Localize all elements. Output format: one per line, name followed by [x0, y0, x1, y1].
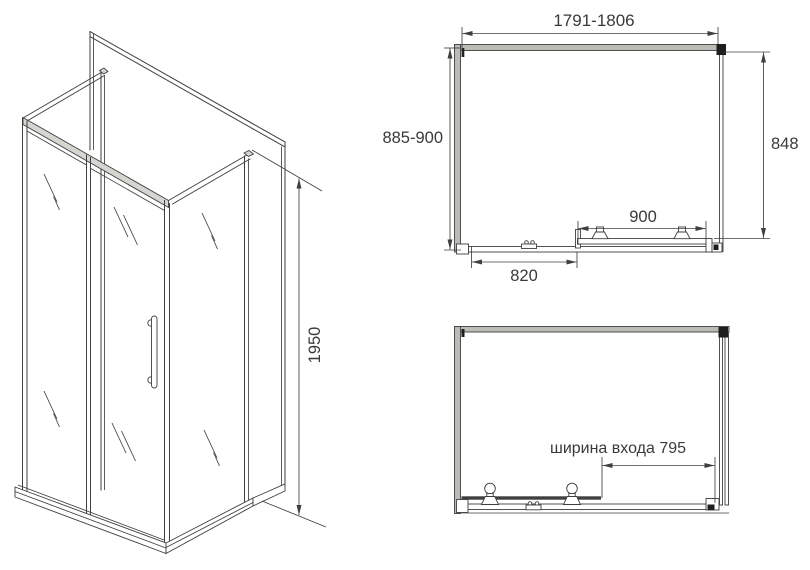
wall-bracket-right-open [719, 327, 729, 338]
plan-walls-open [455, 327, 730, 514]
glass-clamp-open [526, 505, 541, 510]
glass-clamp [522, 244, 537, 249]
sliding-door-open [462, 483, 602, 504]
plan-view-closed: 1791-1806 885-900 848 900 820 [382, 11, 798, 285]
front-header-rail [23, 118, 169, 211]
dim-height-label: 1950 [306, 327, 324, 364]
dim-door-section-label: 900 [629, 208, 657, 226]
drawing-svg: 1950 [0, 0, 810, 570]
dim-side-panel-label: 848 [771, 135, 799, 153]
right-side-panel [169, 151, 254, 504]
glass-marks [44, 174, 220, 466]
dim-fixed-section-label: 820 [510, 267, 538, 285]
corner-foot [706, 499, 719, 511]
iso-view: 1950 [15, 32, 326, 554]
dim-overall-width-label: 1791-1806 [553, 11, 634, 30]
wall-bracket-right [717, 44, 727, 55]
roller-open-right [564, 483, 581, 504]
dim-height: 1950 [252, 150, 326, 527]
plan-walls [455, 44, 727, 252]
dim-entrance-width-label: ширина входа 795 [550, 440, 686, 457]
roller-open-left [482, 483, 499, 504]
dim-fixed-section: 820 [472, 247, 578, 285]
plan-view-open: ширина входа 795 [455, 327, 730, 514]
frame-posts [23, 118, 170, 542]
dim-overall-depth: 885-900 [382, 48, 461, 250]
dim-overall-depth-label: 885-900 [382, 129, 443, 147]
dim-side-panel: 848 [714, 52, 799, 239]
technical-drawing-canvas: 1950 [0, 0, 810, 570]
door-handle [148, 316, 157, 388]
back-panel [90, 32, 285, 489]
wall-bracket-left-open [462, 329, 465, 337]
